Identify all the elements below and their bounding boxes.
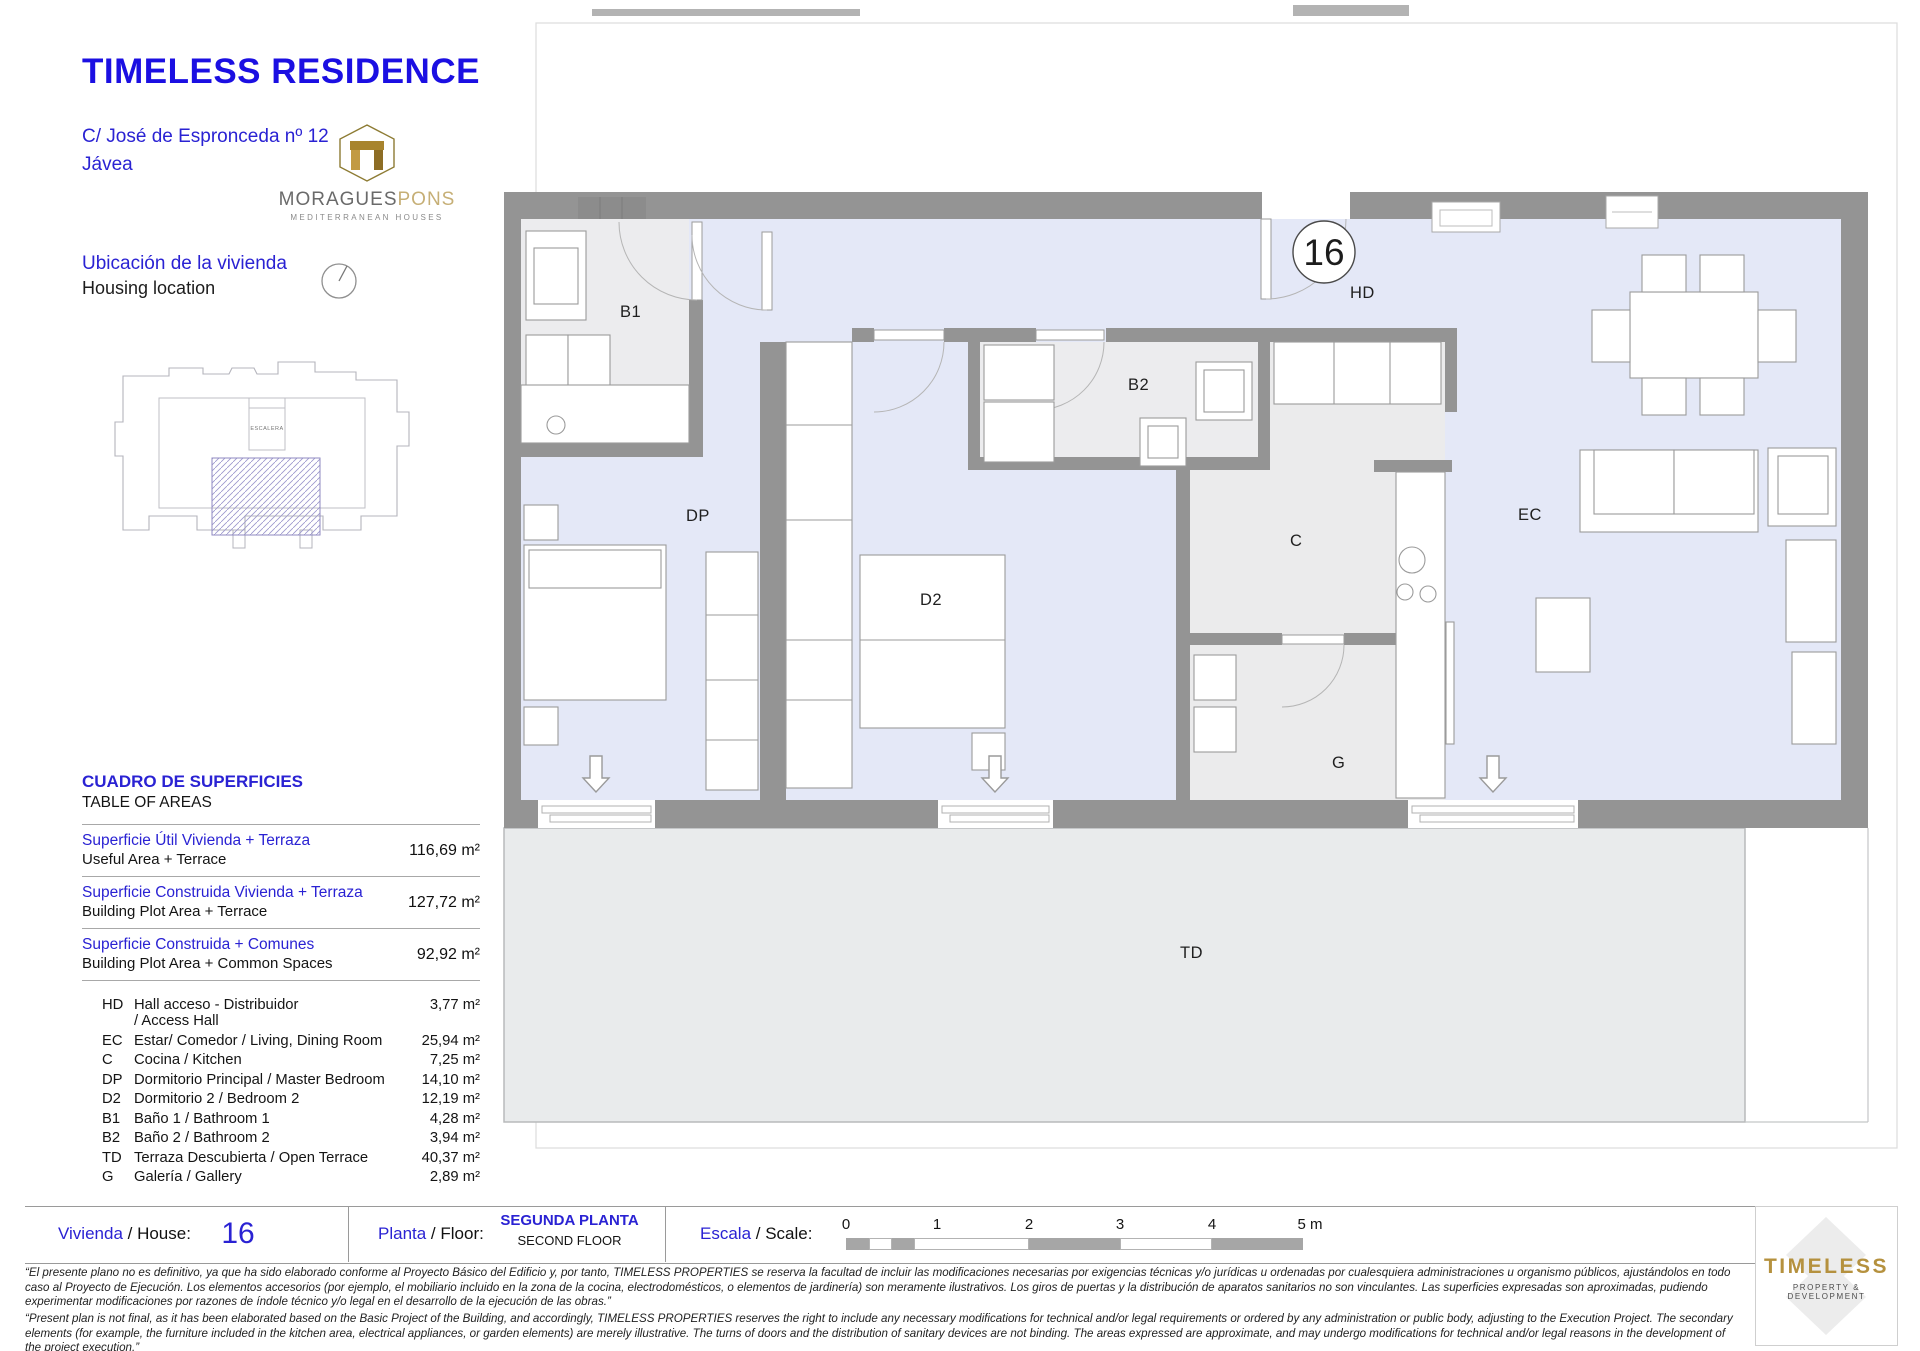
terrace [504,828,1868,1122]
disclaimer-es: “El presente plano no es definitivo, ya … [25,1266,1737,1310]
house-label-es: Vivienda [58,1224,123,1243]
timeless-logo: TIMELESS PROPERTY & DEVELOPMENT [1755,1206,1898,1346]
room-code: TD [102,1150,134,1166]
room-name: Dormitorio Principal / Master Bedroom [134,1072,388,1088]
scale-tick: 1 [933,1216,941,1233]
summary-value: 127,72 m² [408,894,480,912]
room-value: 7,25 m² [388,1052,480,1068]
room-code: HD [102,997,134,1029]
room-name-text2: / Access Hall [134,1013,219,1029]
room-areas-table: HD Hall acceso - Distribuidor/ Access Ha… [82,997,480,1185]
scale-label: Escala / Scale: [700,1224,812,1244]
scale-label-es: Escala [700,1224,751,1243]
room-code: B2 [102,1130,134,1146]
room-name: Galería / Gallery [134,1169,388,1185]
location-label-es: Ubicación de la vivienda [82,253,287,275]
summary-row: Superficie Construida + Comunes Building… [82,928,480,980]
page-title: TIMELESS RESIDENCE [82,52,480,92]
compass-icon [316,258,362,304]
label-td: TD [1180,944,1203,962]
table-row: G Galería / Gallery 2,89 m² [82,1169,480,1185]
label-ec: EC [1518,506,1542,524]
address-line2: Jávea [82,154,133,176]
table-row: B2 Baño 2 / Bathroom 2 3,94 m² [82,1130,480,1146]
table-row: TD Terraza Descubierta / Open Terrace 40… [82,1150,480,1166]
moraguespons-icon [336,124,398,182]
scale-tick: 4 [1208,1216,1216,1233]
room-value: 3,77 m² [388,997,480,1029]
room-value: 2,89 m² [388,1169,480,1185]
scale-tick: 5 m [1297,1216,1322,1233]
moraguespons-name-secondary: PONS [398,189,456,210]
label-c: C [1290,532,1302,550]
room-name: Terraza Descubierta / Open Terrace [134,1150,388,1166]
summary-value: 92,92 m² [417,946,480,964]
stair-label: ESCALERA [250,426,283,432]
label-dp: DP [686,507,710,525]
house-number: 16 [178,1217,298,1251]
floor-value-es: SEGUNDA PLANTA [462,1212,677,1229]
moraguespons-name: MORAGUESPONS [262,189,472,211]
moraguespons-logo: MORAGUESPONS MEDITERRANEAN HOUSES [262,124,472,222]
room-name: Cocina / Kitchen [134,1052,388,1068]
table-row: HD Hall acceso - Distribuidor/ Access Ha… [82,997,480,1029]
scale-label-en: / Scale: [751,1224,812,1243]
room-value: 40,37 m² [388,1150,480,1166]
table-row: C Cocina / Kitchen 7,25 m² [82,1052,480,1068]
scale-tick: 0 [842,1216,850,1233]
room-code: G [102,1169,134,1185]
label-d2: D2 [920,591,942,609]
table-row: DP Dormitorio Principal / Master Bedroom… [82,1072,480,1088]
label-hd: HD [1350,284,1375,302]
room-code: D2 [102,1091,134,1107]
label-b2: B2 [1128,376,1149,394]
house-label: Vivienda / House: [58,1224,191,1244]
areas-title-en: TABLE OF AREAS [82,794,480,812]
title-block-bar [25,1206,1897,1264]
room-name: Baño 2 / Bathroom 2 [134,1130,388,1146]
floor-plan-sheet: 16 B1 DP B2 D2 C EC G HD TD TIMELESS RES… [0,0,1920,1351]
room-value: 25,94 m² [388,1033,480,1049]
unit-number-badge: 16 [1293,221,1355,283]
floor-label-es: Planta [378,1224,426,1243]
room-code: EC [102,1033,134,1049]
summary-value: 116,69 m² [409,842,480,860]
room-value: 14,10 m² [388,1072,480,1088]
room-name: Estar/ Comedor / Living, Dining Room [134,1033,388,1049]
table-row: EC Estar/ Comedor / Living, Dining Room … [82,1033,480,1049]
disclaimer-en: “Present plan is not final, as it has be… [25,1312,1737,1351]
room-code: DP [102,1072,134,1088]
scale-tick: 3 [1116,1216,1124,1233]
room-value: 3,94 m² [388,1130,480,1146]
moraguespons-tagline: MEDITERRANEAN HOUSES [262,213,472,222]
room-value: 4,28 m² [388,1111,480,1127]
areas-panel: CUADRO DE SUPERFICIES TABLE OF AREAS Sup… [82,772,480,1189]
label-b1: B1 [620,303,641,321]
label-g: G [1332,754,1345,772]
bar-divider [348,1206,349,1262]
table-row: B1 Baño 1 / Bathroom 1 4,28 m² [82,1111,480,1127]
floor-value-en: SECOND FLOOR [462,1233,677,1248]
room-name: Dormitorio 2 / Bedroom 2 [134,1091,388,1107]
building-location-map: ESCALERA [113,360,423,556]
room-name: Baño 1 / Bathroom 1 [134,1111,388,1127]
room-name: Hall acceso - Distribuidor/ Access Hall [134,997,388,1029]
room-value: 12,19 m² [388,1091,480,1107]
areas-title-es: CUADRO DE SUPERFICIES [82,772,480,792]
room-code: C [102,1052,134,1068]
moraguespons-name-primary: MORAGUES [279,189,398,210]
timeless-tagline: PROPERTY & DEVELOPMENT [1756,1283,1897,1301]
table-row: D2 Dormitorio 2 / Bedroom 2 12,19 m² [82,1091,480,1107]
unit-number: 16 [1303,232,1344,273]
areas-summary: Superficie Útil Vivienda + Terraza Usefu… [82,824,480,981]
room-code: B1 [102,1111,134,1127]
summary-row: Superficie Útil Vivienda + Terraza Usefu… [82,824,480,876]
room-name-text: Hall acceso - Distribuidor [134,997,298,1013]
scale-tick: 2 [1025,1216,1033,1233]
timeless-name: TIMELESS [1756,1255,1897,1279]
location-label-en: Housing location [82,278,215,299]
summary-row: Superficie Construida Vivienda + Terraza… [82,876,480,928]
